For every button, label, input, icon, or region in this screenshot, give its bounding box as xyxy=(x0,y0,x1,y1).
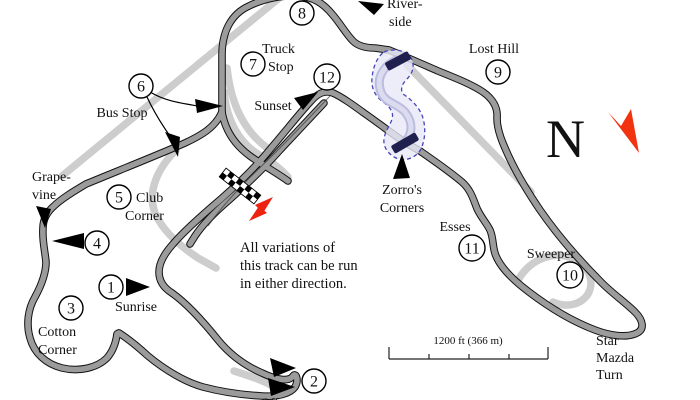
lost-hill-star-mazda-road xyxy=(389,50,642,336)
grapevine-label-line1: Grape- xyxy=(32,170,71,185)
club-corner-label-line2: Corner xyxy=(125,209,164,224)
sunrise-label: Sunrise xyxy=(115,300,157,315)
esses-label: Esses xyxy=(439,220,470,235)
star-mazda-label-line1: Star xyxy=(596,334,619,349)
turn-marker-12: 12 xyxy=(314,64,340,90)
zorros-label-line1: Zorro's xyxy=(382,183,422,198)
compass-n-label: N xyxy=(546,109,585,169)
turn-marker-5: 5 xyxy=(107,185,131,209)
turn-number-9: 9 xyxy=(494,65,502,82)
turn-number-3: 3 xyxy=(67,301,75,318)
club-corner-label-line1: Club xyxy=(136,191,163,206)
note-line-2: this track can be run xyxy=(240,258,358,274)
turn-number-2: 2 xyxy=(310,374,318,391)
bus-stop-road xyxy=(86,112,222,184)
note-line-3: in either direction. xyxy=(240,276,347,292)
zorros-highlight-section xyxy=(372,50,425,160)
turn-number-12: 12 xyxy=(319,70,335,87)
turn-marker-11: 11 xyxy=(459,235,485,261)
bus-stop-label: Bus Stop xyxy=(97,106,148,121)
turn-marker-3: 3 xyxy=(59,296,83,320)
turn1-arrow-icon xyxy=(126,278,150,296)
lost-hill-label: Lost Hill xyxy=(469,42,519,57)
turn-marker-4: 4 xyxy=(85,231,109,255)
turn-number-5: 5 xyxy=(115,190,123,207)
star-mazda-label-line3: Turn xyxy=(596,368,623,383)
star-mazda-label-line2: Mazda xyxy=(596,351,635,366)
direction-note: All variations of this track can be run … xyxy=(240,240,358,292)
cotton-corner-label-line1: Cotton xyxy=(38,325,76,340)
sunset-label: Sunset xyxy=(254,99,291,114)
turn-number-4: 4 xyxy=(93,236,101,253)
turn-marker-8: 8 xyxy=(290,1,314,25)
zorros-label-line2: Corners xyxy=(380,201,424,216)
turn4-arrow-icon xyxy=(52,233,84,249)
track-map-svg: 1 2 3 4 5 6 7 8 9 10 11 12 River- side T… xyxy=(0,0,700,400)
cotton-corner-label-line2: Corner xyxy=(38,343,77,358)
track-map: 1 2 3 4 5 6 7 8 9 10 11 12 River- side T… xyxy=(0,0,700,400)
bus-stop-pointer-line-2 xyxy=(147,97,170,136)
turn-marker-2: 2 xyxy=(302,369,326,393)
truck-stop-label-line2: Stop xyxy=(268,60,294,75)
turn-number-7: 7 xyxy=(249,57,257,74)
north-arrow-icon xyxy=(608,109,639,153)
riverside-label-line2: side xyxy=(389,15,412,30)
sweeper-label: Sweeper xyxy=(527,247,576,262)
turn-marker-6: 6 xyxy=(129,74,153,98)
turn-number-6: 6 xyxy=(137,79,145,96)
riverside-arrow-icon xyxy=(358,1,384,15)
turn-number-1: 1 xyxy=(107,280,115,297)
grapevine-label-line2: vine xyxy=(32,188,56,203)
turn-number-8: 8 xyxy=(298,6,306,23)
truck-stop-label-line1: Truck xyxy=(262,42,295,57)
scale-bar: 1200 ft (366 m) xyxy=(389,335,548,359)
compass: N xyxy=(546,109,639,169)
turn-marker-9: 9 xyxy=(486,60,510,84)
scale-label: 1200 ft (366 m) xyxy=(433,335,503,347)
scale-bar-lines xyxy=(389,347,548,359)
note-line-1: All variations of xyxy=(240,240,335,256)
turn-number-11: 11 xyxy=(464,241,479,258)
turn-number-10: 10 xyxy=(562,268,578,285)
turn-marker-10: 10 xyxy=(557,262,583,288)
riverside-label-line1: River- xyxy=(387,0,423,12)
turn-marker-1: 1 xyxy=(99,275,123,299)
offramp-label-partial: Off- xyxy=(261,395,283,400)
